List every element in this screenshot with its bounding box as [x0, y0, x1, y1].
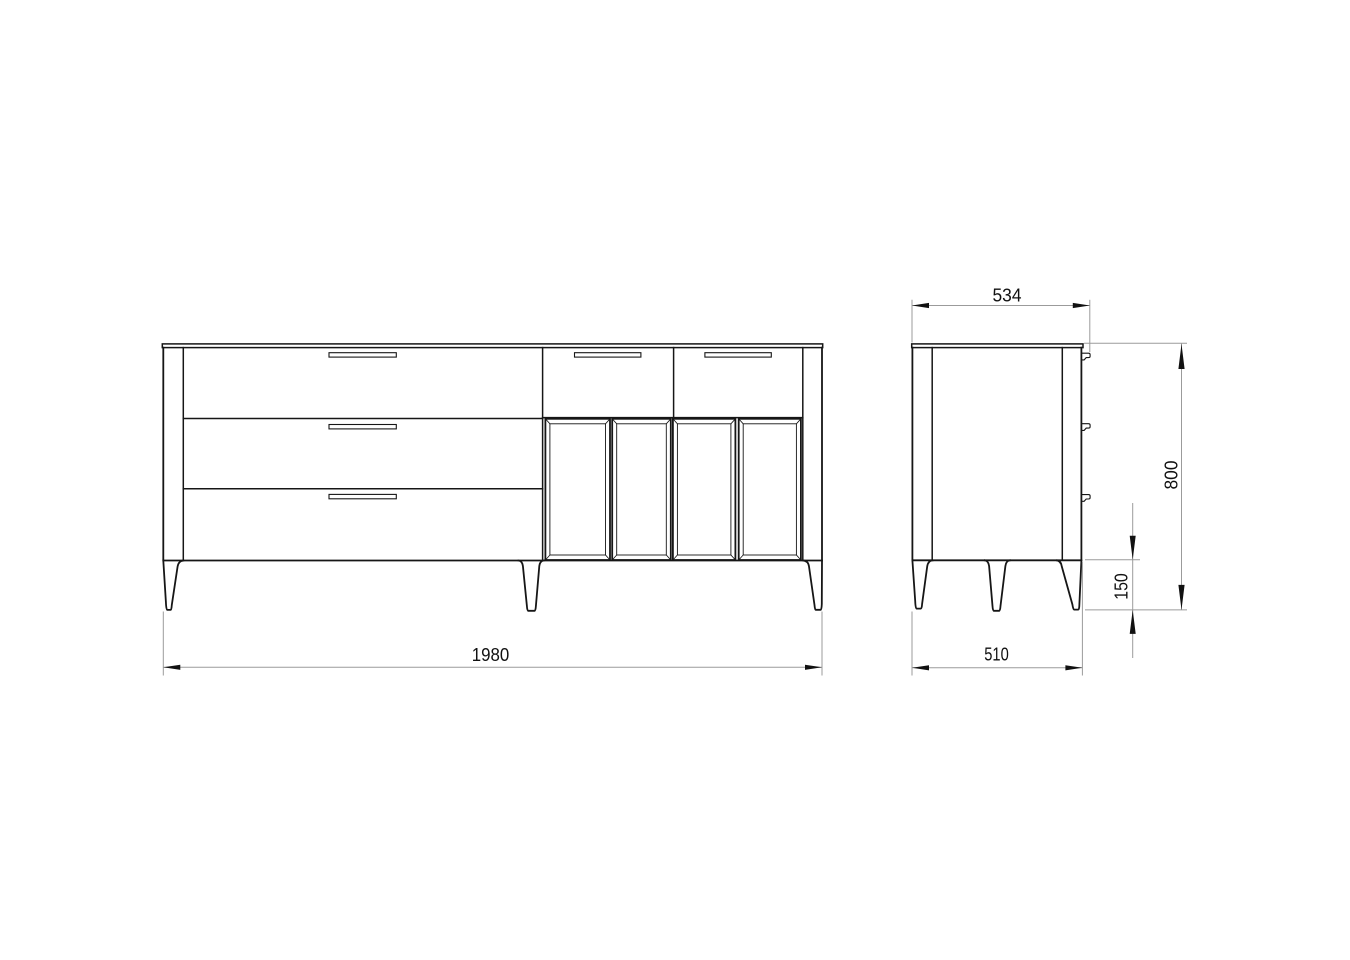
svg-text:150: 150: [1110, 573, 1131, 600]
svg-text:800: 800: [1161, 461, 1182, 490]
svg-text:1980: 1980: [472, 644, 510, 665]
svg-text:534: 534: [993, 285, 1022, 306]
svg-text:510: 510: [984, 644, 1009, 665]
